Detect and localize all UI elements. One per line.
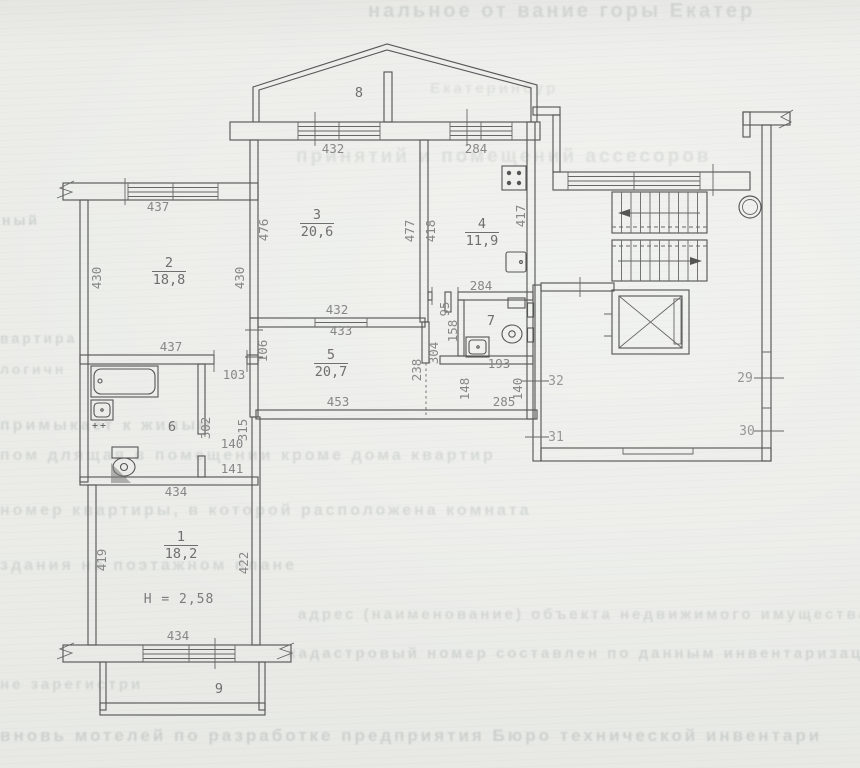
room-number-label: 4 — [478, 216, 486, 232]
dimension-label: 434 — [167, 628, 190, 643]
dimension-label: 103 — [223, 367, 246, 382]
dimension-label: 284 — [470, 278, 493, 293]
dimension-label: 437 — [147, 199, 170, 214]
room-area-label: 18,2 — [165, 546, 198, 562]
bathroom-sink-icon — [91, 400, 113, 428]
room-number-label: 5 — [327, 347, 335, 363]
dimension-label: 284 — [465, 141, 488, 156]
toilet-icon — [111, 447, 138, 483]
dimension-label: 193 — [488, 356, 511, 371]
apartment-walls — [63, 122, 549, 662]
dimension-label: 418 — [423, 220, 438, 243]
dimension-label: 238 — [409, 359, 424, 382]
dimension-label: 419 — [94, 549, 109, 572]
dimension-label: 95 — [437, 301, 452, 316]
dimension-label: 477 — [402, 220, 417, 243]
room-number-label: 1 — [177, 529, 185, 545]
room-number-label: 9 — [215, 681, 223, 697]
bay-window-outline — [253, 44, 537, 122]
dimension-label: 476 — [256, 219, 271, 242]
stair-block-walls — [525, 107, 790, 461]
balcony-9-outline — [100, 662, 265, 715]
kitchen-sink-icon — [506, 252, 526, 272]
room-number-label: 7 — [487, 313, 495, 329]
dimension-label: 417 — [513, 205, 528, 228]
apartment-door-number: 32 — [548, 374, 564, 389]
elevator-shaft — [604, 290, 689, 354]
dimension-label: 158 — [445, 320, 460, 343]
dimension-label: 430 — [232, 267, 247, 290]
garbage-chute-icon — [739, 196, 761, 218]
windows — [125, 109, 512, 669]
dimension-label: 434 — [165, 484, 188, 499]
dimension-label: 432 — [322, 141, 345, 156]
apartment-door-number: 30 — [739, 424, 755, 439]
wc-toilet-icon — [502, 298, 534, 343]
room-number-label: 8 — [355, 85, 363, 101]
apartment-door-number: 29 — [737, 371, 753, 386]
stairs-up-arrow — [618, 209, 630, 217]
dimension-label: 304 — [426, 342, 441, 365]
dimension-label: 453 — [327, 394, 350, 409]
stairs-down-arrow — [690, 257, 702, 265]
room-area-label: 18,8 — [153, 272, 186, 288]
dimension-label: 432 — [326, 302, 349, 317]
room-area-label: 11,9 — [466, 233, 499, 249]
dimension-label: 430 — [89, 267, 104, 290]
stove-icon — [502, 166, 526, 190]
room-number-label: 2 — [165, 255, 173, 271]
floor-plan-scan: нальное от вание горы ЕкатерЕкатеринбурп… — [0, 0, 860, 768]
dimension-label: 106 — [255, 340, 270, 363]
apartment-door-number: 31 — [548, 430, 564, 445]
dimension-label: 437 — [160, 339, 183, 354]
floor-plan-drawing: 118,2218,8320,6411,9520,76789H = 2,58437… — [0, 0, 860, 768]
dimension-label: 422 — [236, 552, 251, 575]
dimension-label: 140 — [510, 378, 525, 401]
staircase — [612, 192, 707, 281]
bathtub-icon — [91, 366, 158, 397]
dimension-label: 315 — [235, 419, 250, 442]
ceiling-height-note: H = 2,58 — [144, 592, 215, 607]
dimension-label: 302 — [198, 417, 213, 440]
dimension-label: 141 — [221, 461, 244, 476]
room-area-label: 20,6 — [301, 224, 334, 240]
room-area-label: 20,7 — [315, 364, 348, 380]
room-number-label: 3 — [313, 207, 321, 223]
wc-sink-icon — [466, 337, 489, 357]
dimension-label: 433 — [330, 323, 353, 338]
room-number-label: 6 — [168, 419, 176, 435]
dimension-label: 148 — [457, 378, 472, 401]
